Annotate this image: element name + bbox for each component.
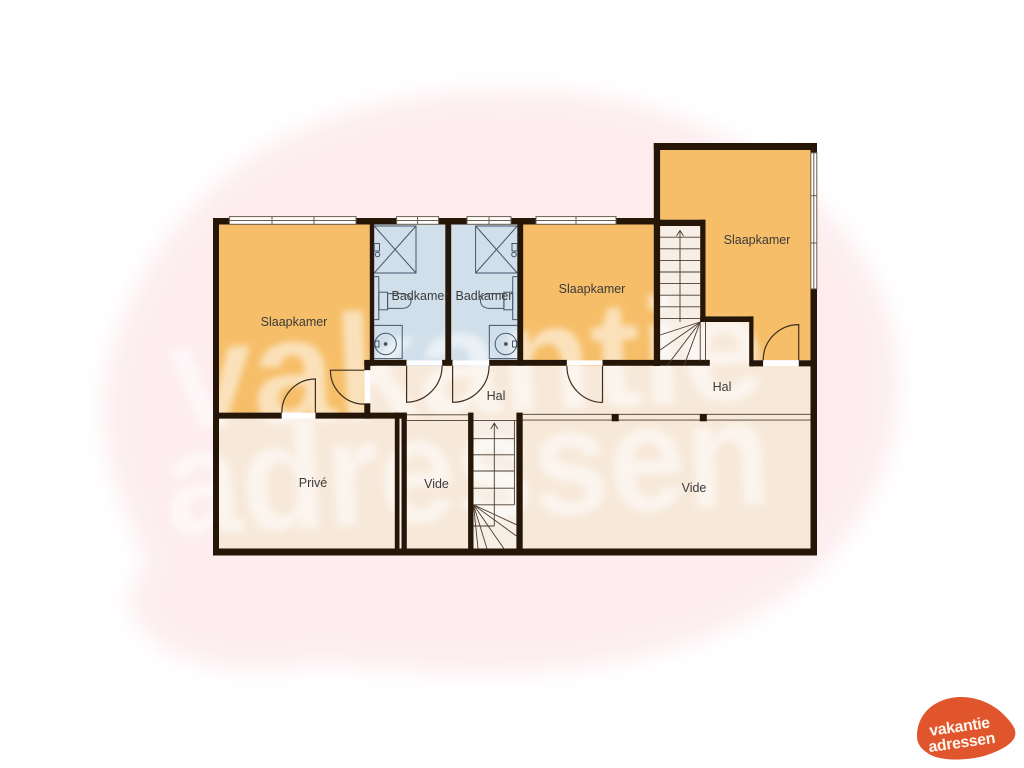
svg-text:Badkamer: Badkamer [456, 289, 513, 303]
svg-text:Hal: Hal [713, 380, 732, 394]
svg-text:Hal: Hal [487, 389, 506, 403]
svg-text:adressen: adressen [160, 367, 774, 566]
svg-text:Vide: Vide [682, 481, 707, 495]
svg-text:Slaapkamer: Slaapkamer [724, 233, 791, 247]
svg-text:Slaapkamer: Slaapkamer [261, 315, 328, 329]
svg-text:Vide: Vide [424, 477, 449, 491]
svg-text:Badkamer: Badkamer [392, 289, 449, 303]
svg-text:Slaapkamer: Slaapkamer [559, 282, 626, 296]
svg-text:Privé: Privé [299, 476, 328, 490]
